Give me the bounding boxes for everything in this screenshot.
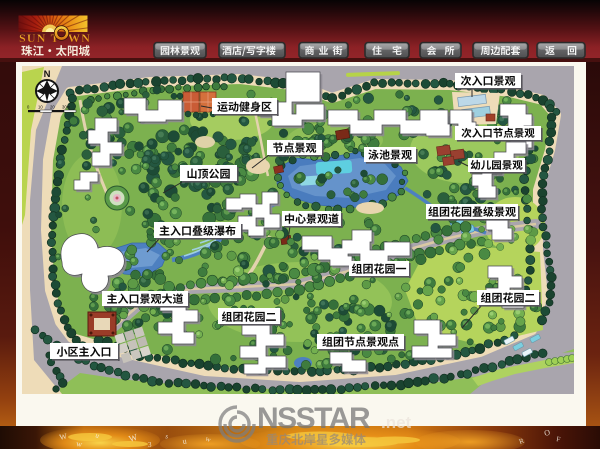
svg-text:3: 3 bbox=[148, 441, 152, 449]
svg-text:10: 10 bbox=[38, 105, 43, 110]
svg-text:20: 20 bbox=[50, 105, 55, 110]
svg-text:NSSTAR: NSSTAR bbox=[257, 402, 371, 435]
svg-text:SUN T: SUN T bbox=[19, 31, 60, 45]
svg-text:WN: WN bbox=[68, 31, 91, 45]
svg-text:.net: .net bbox=[381, 413, 412, 432]
svg-text:30m: 30m bbox=[62, 105, 71, 110]
svg-text:N: N bbox=[44, 69, 51, 80]
